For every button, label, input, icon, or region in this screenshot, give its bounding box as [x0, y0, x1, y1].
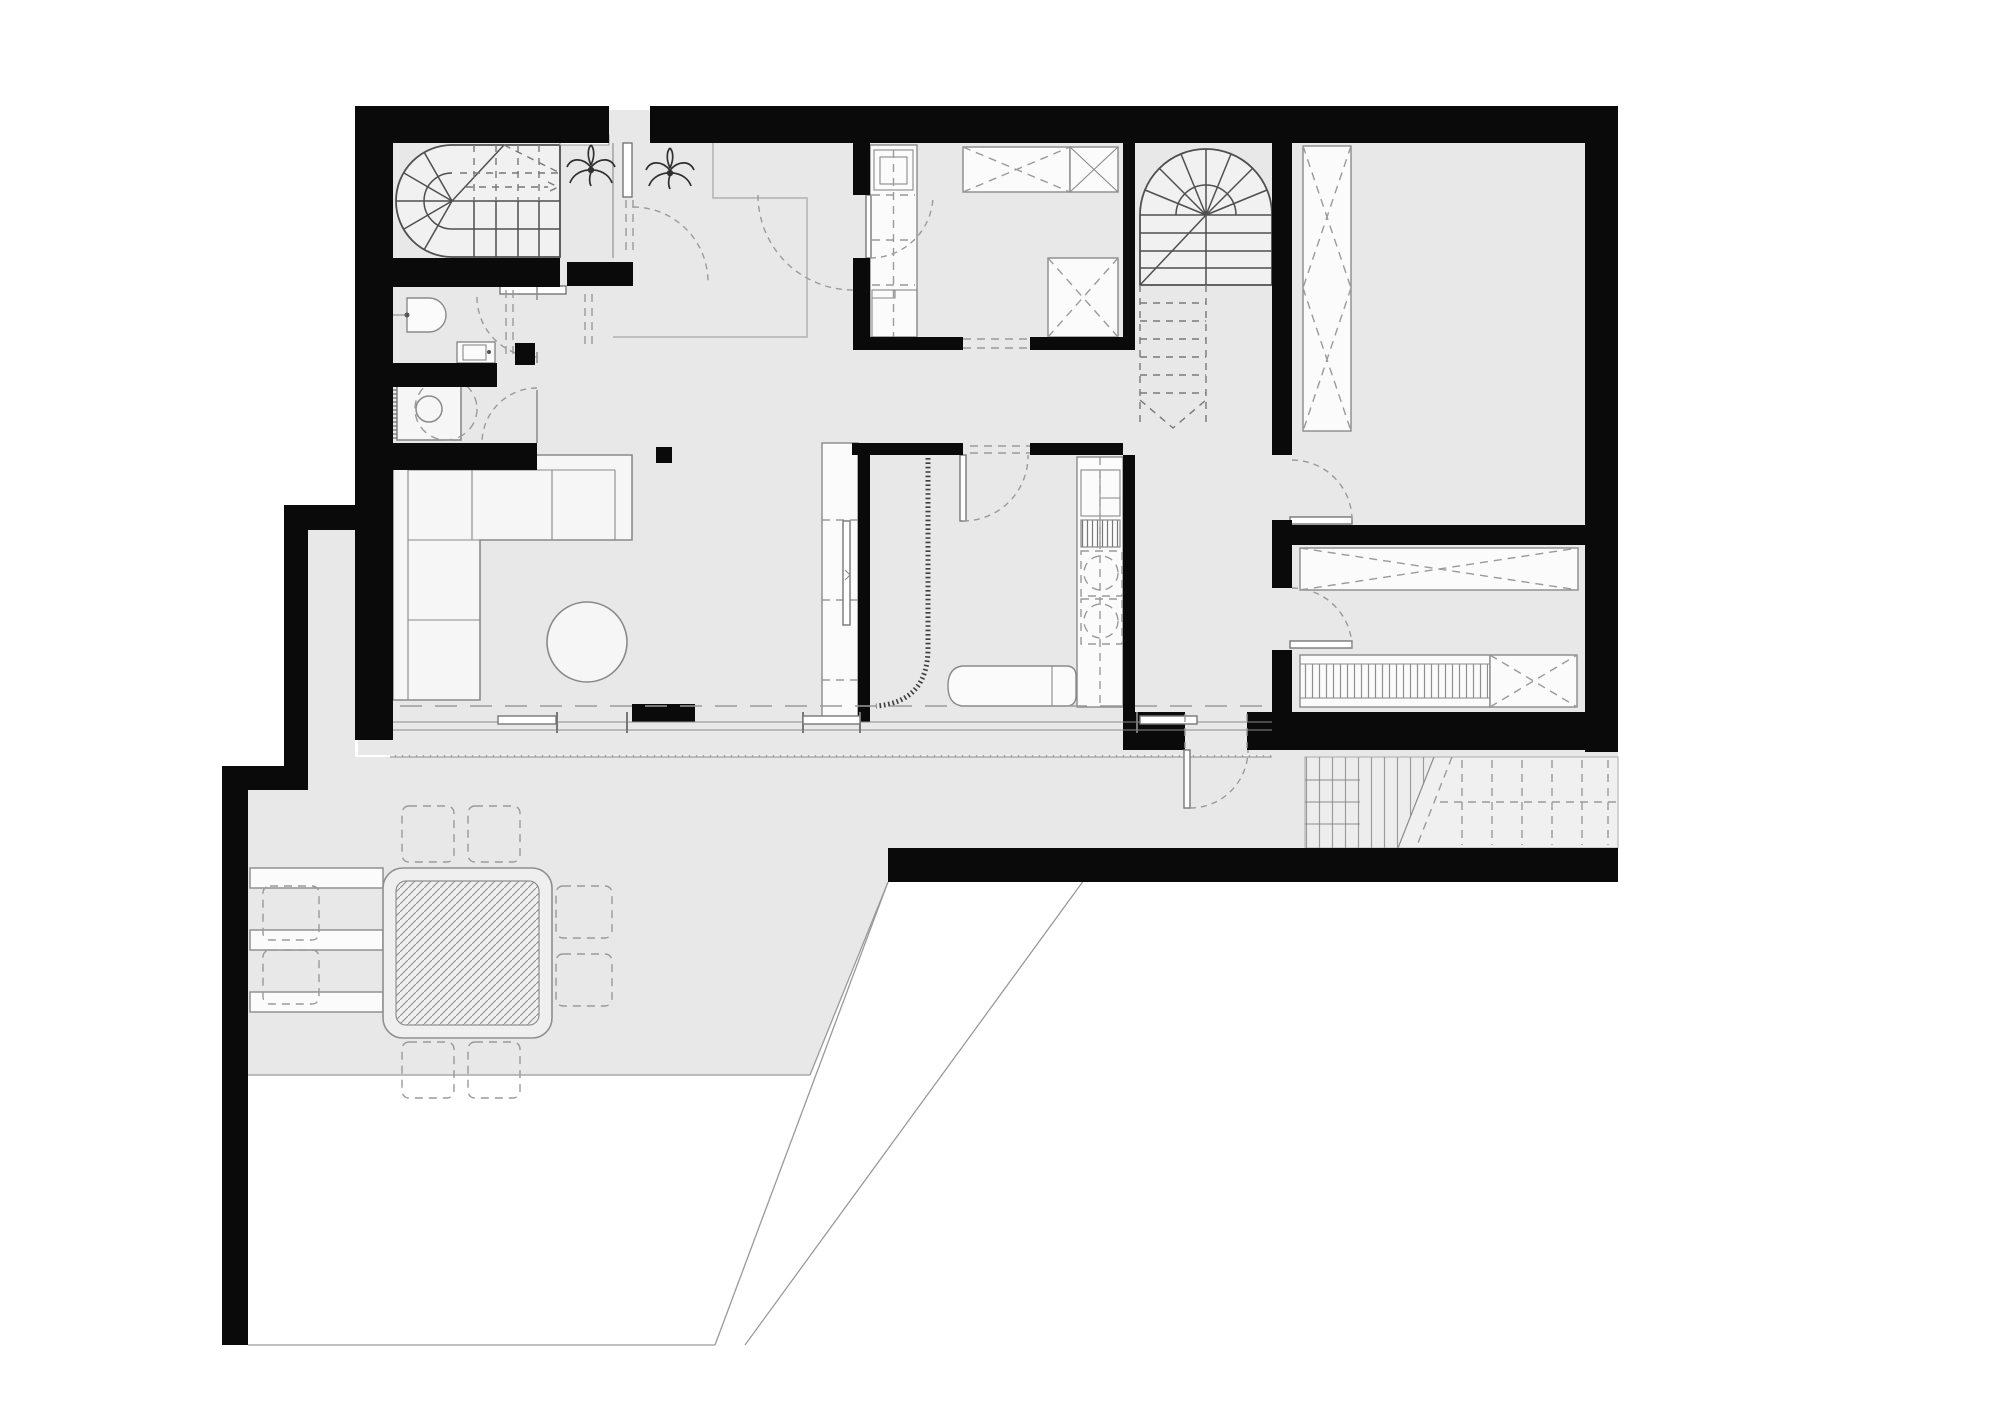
door-leaf — [866, 195, 871, 258]
outdoor-bench — [250, 868, 383, 888]
daybed — [948, 666, 1076, 706]
cabinet-door — [843, 521, 850, 625]
sliding-panel — [803, 716, 860, 724]
floor-plan-sheet — [0, 0, 2000, 1414]
exterior-ramp — [1398, 757, 1618, 848]
winder-stair-west — [396, 145, 560, 257]
toilet-valve — [405, 313, 410, 318]
door-leaf — [1184, 750, 1190, 808]
outdoor-table — [383, 868, 552, 1038]
column — [515, 343, 535, 365]
wardrobe-tall — [1303, 146, 1351, 431]
kitchen — [1077, 457, 1123, 707]
coffee-table — [547, 602, 627, 682]
column — [656, 447, 672, 463]
basin-tap — [487, 350, 491, 354]
washing-machine — [397, 378, 461, 440]
floor-plan-drawing — [0, 0, 2000, 1414]
door-leaf — [1290, 641, 1352, 648]
entrance-door-leaf — [623, 143, 632, 197]
sliding-panel — [1140, 716, 1197, 724]
sliding-panel — [498, 716, 556, 724]
sliding-door-leaf — [500, 286, 566, 294]
door-leaf — [960, 455, 966, 521]
toilet — [407, 298, 446, 332]
door-leaf — [1290, 517, 1352, 524]
